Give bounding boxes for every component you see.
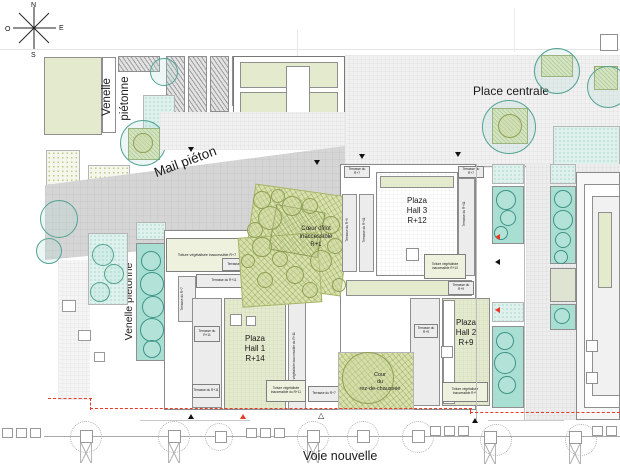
water-feature bbox=[553, 126, 620, 166]
entrance-marker bbox=[188, 147, 194, 152]
hall1-line3: R+14 bbox=[228, 354, 282, 364]
tree-canopy bbox=[498, 376, 516, 394]
parking-box bbox=[430, 426, 441, 436]
tree-canopy bbox=[496, 190, 516, 210]
venelle-pietonne-top-label: piétonne bbox=[119, 56, 131, 141]
tree-pit-brace bbox=[569, 444, 581, 464]
tree-pit-brace bbox=[168, 443, 180, 463]
compass-south-label: S bbox=[31, 52, 36, 59]
plaza-upper bbox=[160, 112, 345, 150]
parking-box bbox=[30, 428, 41, 438]
parking-box bbox=[274, 428, 285, 438]
survey-line-vertical bbox=[514, 8, 515, 52]
tree-crown bbox=[332, 278, 346, 292]
tree-pit bbox=[484, 431, 497, 444]
kerb-line bbox=[524, 164, 525, 420]
entrance-marker bbox=[472, 418, 478, 423]
tree-crown bbox=[133, 133, 153, 153]
tree-crown bbox=[302, 282, 318, 298]
hall1-line2: Hall 1 bbox=[228, 344, 282, 354]
roof-label-box: Terrasse du R+11 bbox=[194, 326, 220, 342]
tree-canopy bbox=[534, 48, 580, 94]
entrance-marker bbox=[495, 259, 500, 265]
roof-label-box: Toiture végétalisée inaccessible du R+11 bbox=[266, 380, 306, 402]
entrance-marker-red bbox=[495, 234, 500, 240]
tree-canopy bbox=[555, 232, 571, 248]
venelle-pietonne-top-label: Venelle bbox=[101, 56, 113, 138]
tree-pit bbox=[168, 430, 181, 443]
entrance-marker bbox=[359, 154, 365, 159]
planter bbox=[136, 222, 166, 240]
hall3-line3: R+12 bbox=[392, 216, 442, 226]
hall3-line1: Plaza bbox=[392, 196, 442, 206]
tree-pit-brace bbox=[80, 443, 92, 463]
tree-canopy bbox=[92, 244, 114, 266]
road-edge-line bbox=[44, 436, 620, 437]
tree-canopy bbox=[554, 190, 572, 208]
tree-canopy bbox=[554, 250, 568, 264]
tree-canopy bbox=[40, 200, 78, 238]
site-boundary bbox=[48, 398, 92, 399]
parking-box bbox=[16, 428, 27, 438]
tree-canopy bbox=[494, 352, 516, 374]
entrance-marker-red bbox=[240, 414, 246, 419]
building-roof-hatched bbox=[210, 56, 229, 112]
hall2-line1: Plaza bbox=[444, 318, 488, 328]
entrance-box bbox=[230, 314, 242, 326]
cour-line1: Cour bbox=[348, 372, 412, 379]
site-boundary bbox=[470, 408, 471, 414]
roof-label-vertical: Terrasse du R+7 bbox=[180, 278, 184, 320]
tree-pit bbox=[215, 431, 227, 443]
tree-canopy bbox=[496, 332, 514, 350]
tree-canopy bbox=[500, 210, 516, 226]
road-line bbox=[140, 420, 250, 421]
site-plan: N S O E Place centrale Mail piéton Venel… bbox=[0, 0, 620, 465]
tree-canopy bbox=[90, 282, 110, 302]
hall2-line2: Hall 2 bbox=[444, 328, 488, 338]
parking-box bbox=[2, 428, 13, 438]
tree-crown bbox=[241, 254, 255, 268]
parking-box bbox=[260, 428, 271, 438]
tree-crown bbox=[247, 222, 263, 238]
tree-canopy bbox=[553, 210, 573, 230]
compass-west-label: O bbox=[5, 26, 11, 33]
entrance-box bbox=[586, 372, 598, 384]
parking-box bbox=[592, 426, 603, 436]
roof-label-box: Terrasse du R+7 bbox=[308, 386, 340, 402]
tree-crown bbox=[252, 237, 272, 257]
entrance-marker bbox=[188, 414, 194, 419]
tree-canopy bbox=[150, 58, 178, 86]
tree-crown bbox=[286, 266, 304, 284]
coeur-line3: R+1 bbox=[288, 242, 344, 250]
entrance-box bbox=[586, 340, 598, 352]
roof-label-box: Toiture végétalisée inaccessible R+9 bbox=[442, 382, 488, 402]
tree-pit-brace bbox=[484, 444, 496, 464]
parking-box bbox=[606, 426, 617, 436]
building-roof-green bbox=[598, 212, 612, 288]
tree-crown bbox=[302, 198, 318, 214]
tree-pit bbox=[307, 430, 320, 443]
tree-canopy bbox=[142, 296, 164, 318]
roof-label-vertical: Terrasse du R+9 bbox=[345, 198, 349, 262]
site-boundary bbox=[470, 412, 620, 413]
tree-canopy bbox=[140, 318, 164, 342]
hall1-label: Plaza Hall 1 R+14 bbox=[228, 334, 282, 364]
parking-box bbox=[444, 426, 455, 436]
road-line bbox=[488, 420, 564, 421]
tree-canopy bbox=[554, 308, 570, 324]
compass-east-label: E bbox=[59, 25, 64, 32]
roof-label-box: Terrasse du R+7 bbox=[458, 166, 484, 178]
cour-line3: rez-de-chaussée bbox=[348, 386, 412, 393]
roof-label-box: Toiture végétalisée inaccessible R+10 bbox=[424, 254, 466, 279]
entrance-box bbox=[406, 248, 419, 261]
cour-line2: du bbox=[348, 379, 412, 386]
voie-nouvelle-label: Voie nouvelle bbox=[303, 449, 377, 463]
hall3-label: Plaza Hall 3 R+12 bbox=[392, 196, 442, 226]
tree-pit bbox=[80, 430, 93, 443]
coeur-line1: Cœur d'îlot bbox=[288, 226, 344, 234]
coeur-ilot-label: Cœur d'îlot inaccessible R+1 bbox=[288, 226, 344, 249]
tree-crown bbox=[498, 114, 522, 138]
tree-canopy bbox=[141, 251, 161, 271]
planter-box bbox=[550, 268, 576, 302]
entrance-marker bbox=[314, 160, 320, 165]
open-triangle-marker: △ bbox=[318, 412, 324, 420]
hall1-line1: Plaza bbox=[228, 334, 282, 344]
survey-line-horizontal bbox=[0, 49, 620, 50]
tree-crown bbox=[257, 272, 273, 288]
building-roof-green bbox=[44, 57, 102, 135]
cour-rdc-label: Cour du rez-de-chaussée bbox=[348, 372, 412, 393]
tree-pit bbox=[412, 430, 425, 443]
planter-box bbox=[78, 330, 91, 341]
building-roof-hatched bbox=[188, 56, 207, 114]
tree-crown bbox=[272, 251, 288, 267]
site-boundary bbox=[90, 408, 472, 409]
roof-label-box: Terrasse du R+9 bbox=[448, 281, 474, 295]
tree-canopy bbox=[143, 340, 161, 358]
terrace-strip bbox=[410, 298, 440, 406]
parking-box bbox=[458, 426, 469, 436]
tree-canopy bbox=[104, 264, 124, 284]
entrance-box bbox=[441, 346, 453, 358]
tree-canopy bbox=[140, 272, 164, 296]
hall2-label: Plaza Hall 2 R+9 bbox=[444, 318, 488, 348]
building-roof-green bbox=[380, 176, 454, 188]
compass-north-label: N bbox=[31, 2, 36, 9]
roof-label-box: Terrasse du R+9 bbox=[414, 324, 438, 338]
kerb-line bbox=[476, 164, 477, 420]
tree-pit bbox=[357, 430, 370, 443]
planter-box bbox=[62, 300, 76, 312]
place-centrale-label: Place centrale bbox=[473, 84, 549, 98]
tree-pit bbox=[569, 431, 582, 444]
utility-box bbox=[600, 34, 618, 51]
parking-box bbox=[246, 428, 257, 438]
survey-line-vertical bbox=[297, 30, 298, 58]
planter-box bbox=[94, 352, 105, 362]
roof-label-box: Terrasse du R+11 bbox=[192, 384, 220, 398]
tree-crown bbox=[282, 196, 302, 216]
entrance-marker bbox=[455, 152, 461, 157]
coeur-line2: inaccessible bbox=[288, 234, 344, 242]
planter bbox=[492, 164, 524, 184]
compass-rose-icon: N S O E bbox=[4, 1, 68, 59]
tree-crown bbox=[310, 250, 332, 272]
roof-label-box: Terrasse du R+7 bbox=[344, 166, 370, 178]
roof-label-vertical: Terrasse du R+11 bbox=[362, 198, 366, 262]
hall3-line2: Hall 3 bbox=[392, 206, 442, 216]
roof-label-vertical: Terrasse du R+11 bbox=[462, 184, 466, 244]
entrance-marker-red bbox=[495, 307, 500, 313]
planter bbox=[550, 164, 576, 184]
entrance-box bbox=[246, 316, 256, 326]
